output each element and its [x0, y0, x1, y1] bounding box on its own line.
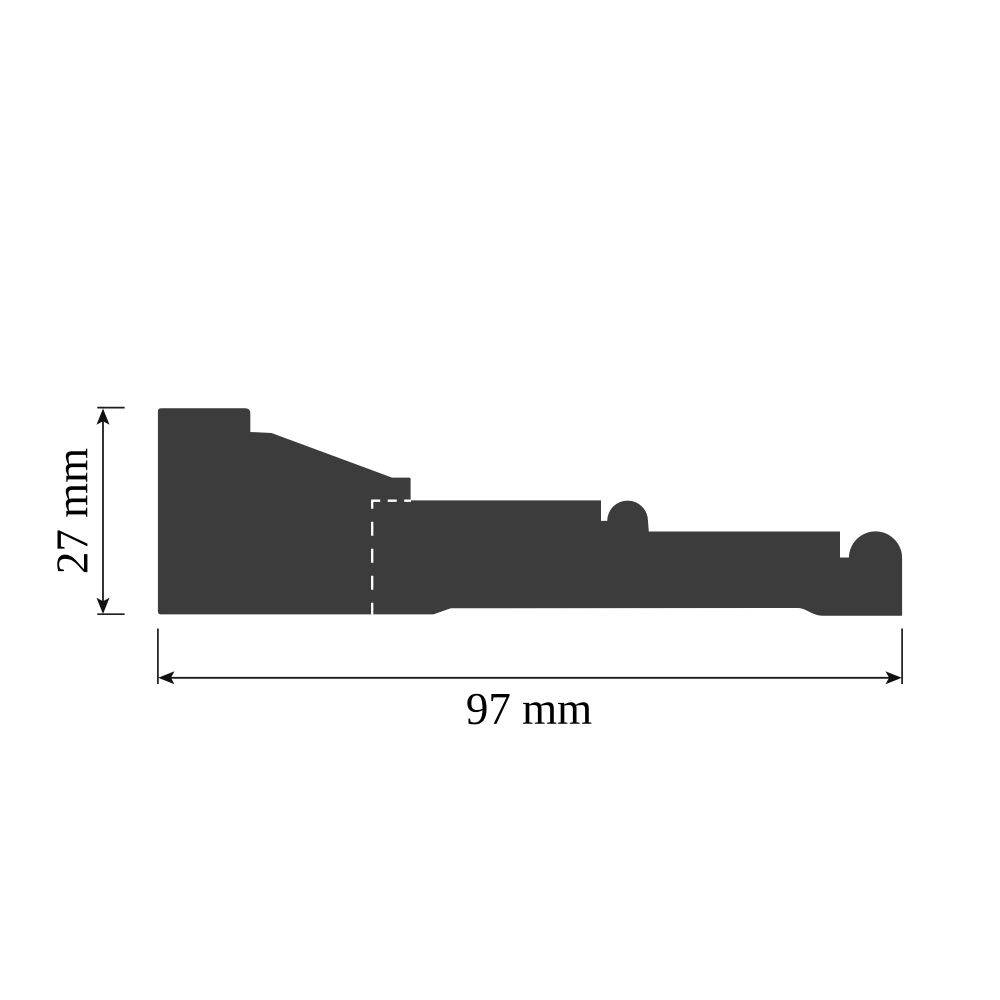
- svg-text:97 mm: 97 mm: [466, 684, 592, 734]
- svg-text:27 mm: 27 mm: [48, 448, 98, 574]
